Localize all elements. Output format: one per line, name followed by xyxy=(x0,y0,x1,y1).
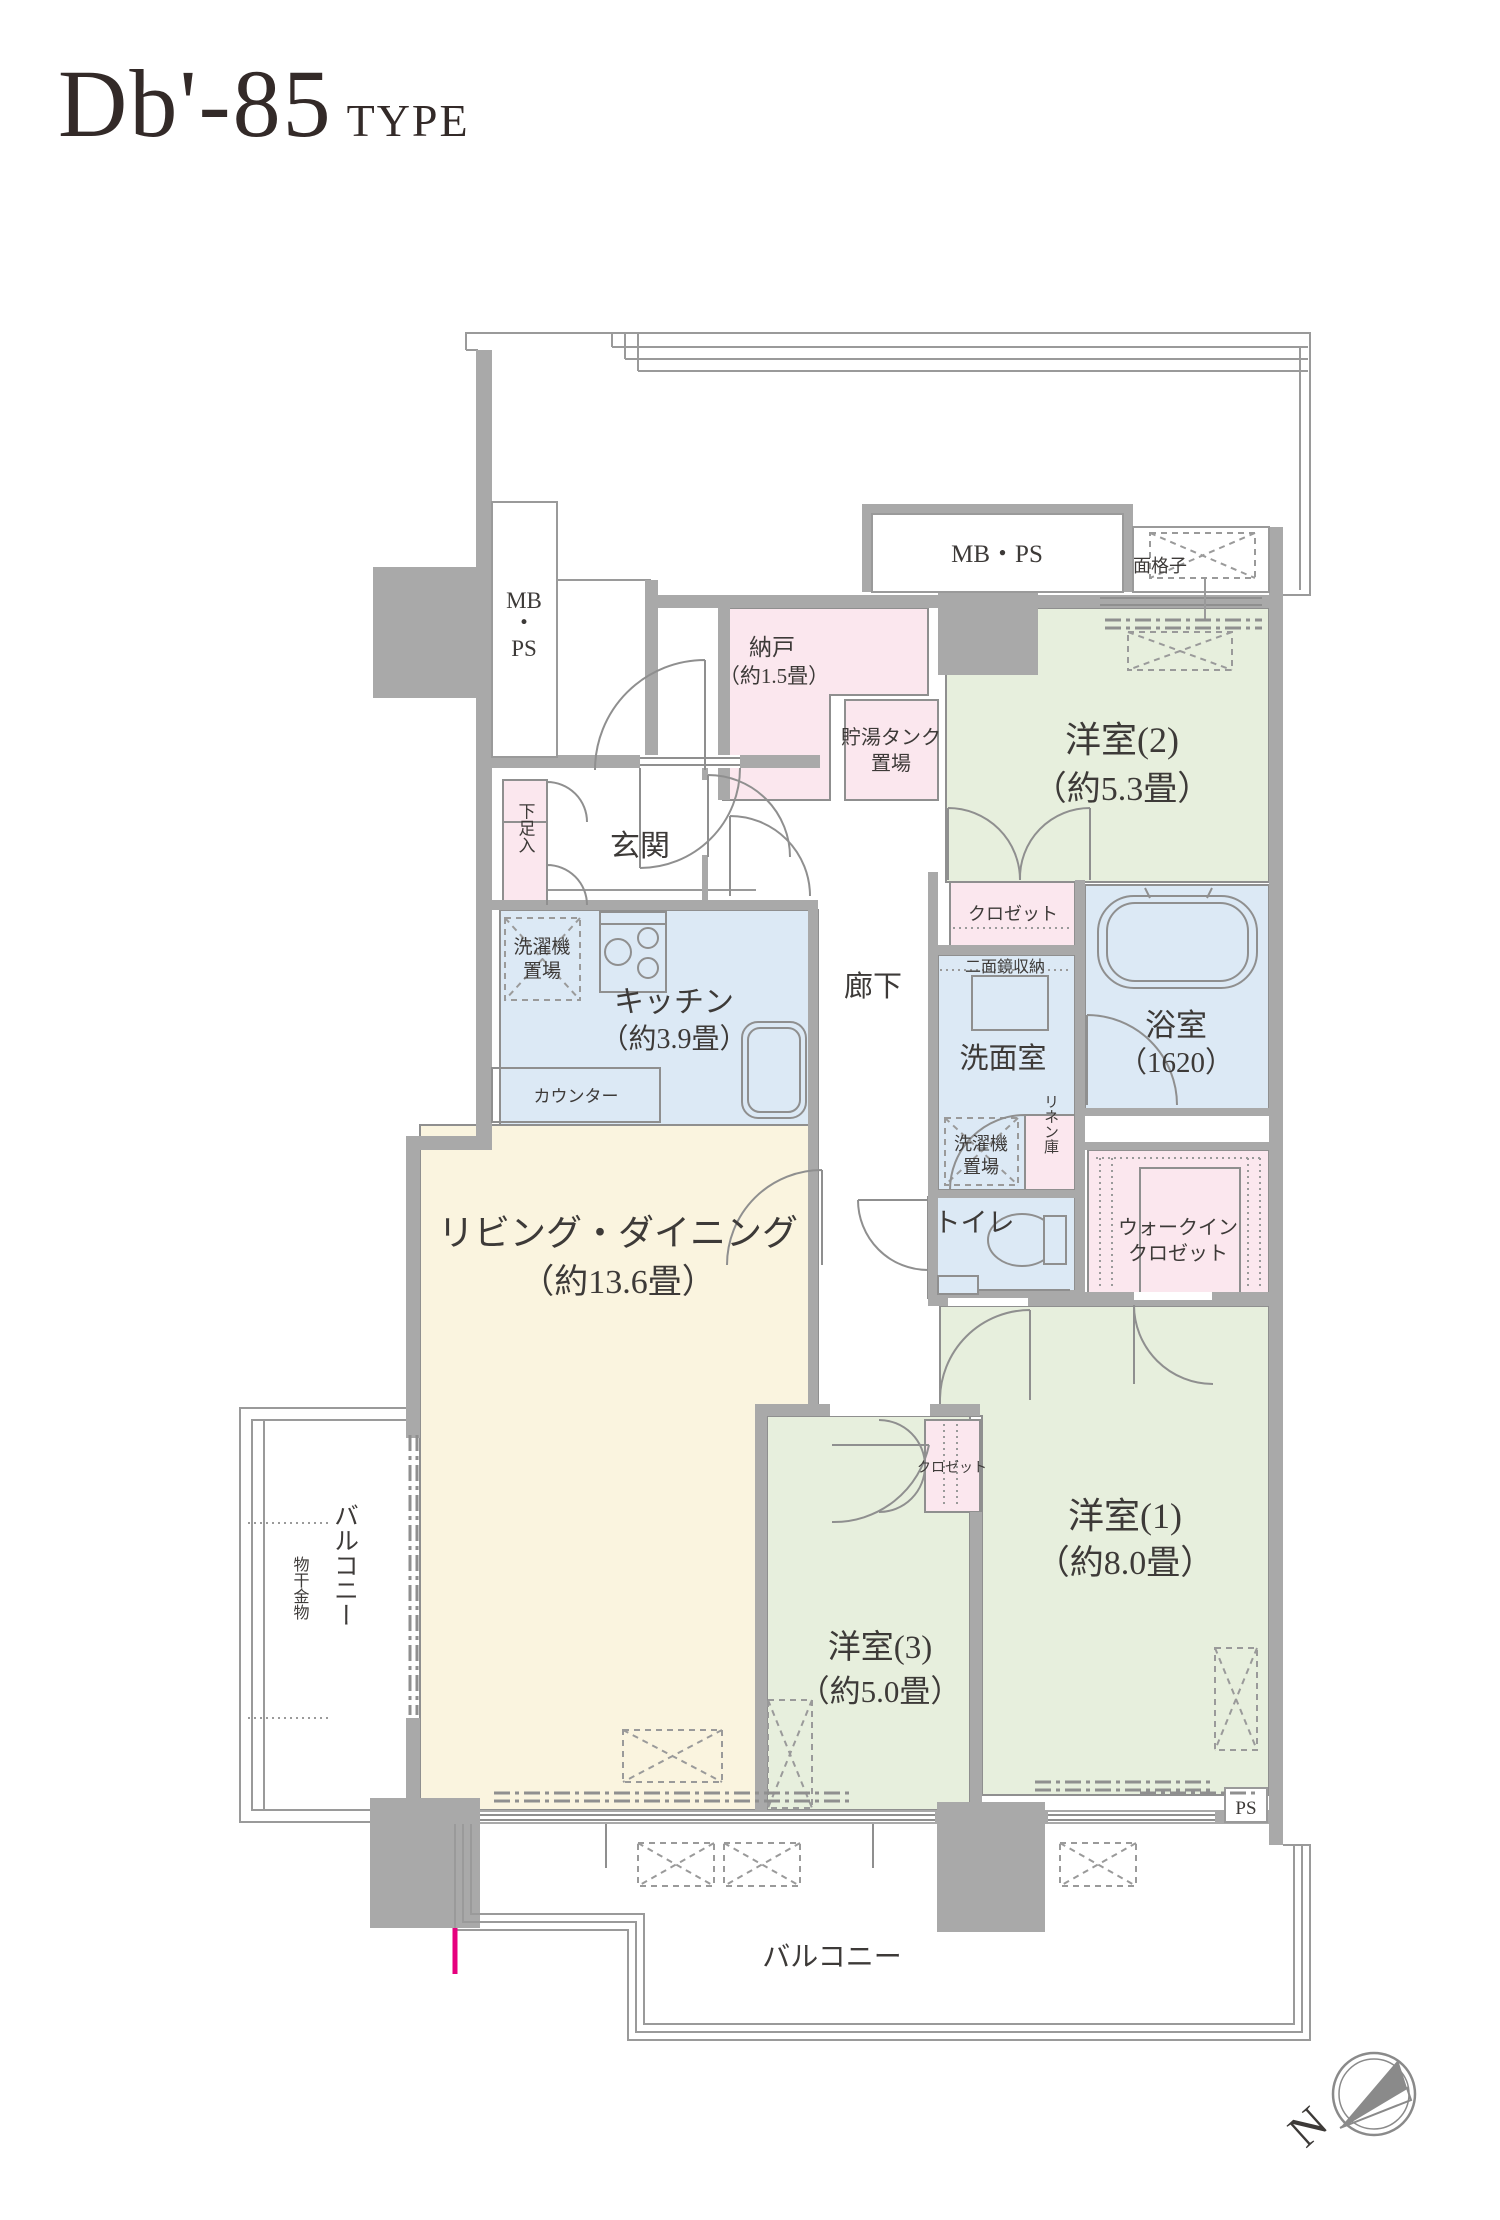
room-bath xyxy=(1085,885,1269,1115)
label-linen: リネン庫 xyxy=(1042,1094,1059,1154)
label-drying: 物干金物 xyxy=(291,1556,310,1621)
hatch-balcony-1 xyxy=(638,1843,714,1886)
label-western2: 洋室(2) xyxy=(1065,720,1179,760)
hatch-balcony-2 xyxy=(724,1843,800,1886)
label-grille: 面格子 xyxy=(1133,556,1187,576)
label-tank-2: 置場 xyxy=(871,752,911,775)
label-tank-1: 貯湯タンク xyxy=(841,726,941,749)
floorplan-drawing: N リビング・ダイニング （約13.6畳） キッチン （約3.9畳） 洋室(1)… xyxy=(0,0,1500,2220)
label-washroom: 洗面室 xyxy=(959,1042,1046,1075)
label-mbps-top: MB・PS xyxy=(951,541,1043,568)
label-mirror: 二面鏡収納 xyxy=(965,957,1045,976)
label-closet3: クロゼット xyxy=(917,1460,987,1476)
label-mbps-left-3: PS xyxy=(511,636,537,661)
label-ps: PS xyxy=(1235,1798,1256,1819)
label-washer2-2: 置場 xyxy=(963,1157,999,1177)
label-balcony-left: バルコニー xyxy=(331,1503,359,1628)
floorplan-page: Db'-85 TYPE xyxy=(0,0,1500,2220)
label-kitchen: キッチン xyxy=(614,986,734,1019)
label-hallway: 廊下 xyxy=(844,970,902,1003)
label-entrance: 玄関 xyxy=(610,830,670,863)
label-washer1-1: 洗濯機 xyxy=(513,936,570,958)
balcony-bottom xyxy=(455,1824,1310,2040)
label-western3-size: （約5.0畳） xyxy=(799,1674,962,1709)
label-nando: 納戸 xyxy=(749,635,795,660)
label-mbps-left-2: ・ xyxy=(513,610,536,635)
label-western1: 洋室(1) xyxy=(1068,1496,1182,1536)
label-living: リビング・ダイニング xyxy=(438,1213,798,1253)
label-wic-1: ウォークイン xyxy=(1118,1216,1238,1239)
label-closet2: クロゼット xyxy=(968,904,1058,924)
label-counter: カウンター xyxy=(534,1087,619,1106)
label-wic-2: クロゼット xyxy=(1128,1242,1228,1265)
label-living-size: （約13.6畳） xyxy=(520,1263,716,1301)
label-western3: 洋室(3) xyxy=(828,1629,932,1666)
label-kitchen-size: （約3.9畳） xyxy=(600,1023,747,1055)
balcony-left xyxy=(240,1408,406,1822)
label-washer2-1: 洗濯機 xyxy=(954,1134,1008,1154)
label-washer1-2: 置場 xyxy=(523,960,561,982)
label-toilet: トイレ xyxy=(934,1208,1015,1238)
compass-north-label: N xyxy=(1278,2096,1337,2156)
compass-icon: N xyxy=(1278,2053,1415,2157)
label-shoe-box: 下足入 xyxy=(516,803,536,854)
label-bath: 浴室 xyxy=(1145,1008,1207,1043)
label-western1-size: （約8.0畳） xyxy=(1036,1544,1215,1582)
label-bath-size: （1620） xyxy=(1118,1047,1234,1079)
label-nando-size: （約1.5畳） xyxy=(719,664,829,688)
label-balcony-bottom: バルコニー xyxy=(762,1942,901,1973)
label-western2-size: （約5.3畳） xyxy=(1033,770,1212,808)
hatch-balcony-3 xyxy=(1060,1843,1136,1886)
room-tank xyxy=(845,700,938,800)
